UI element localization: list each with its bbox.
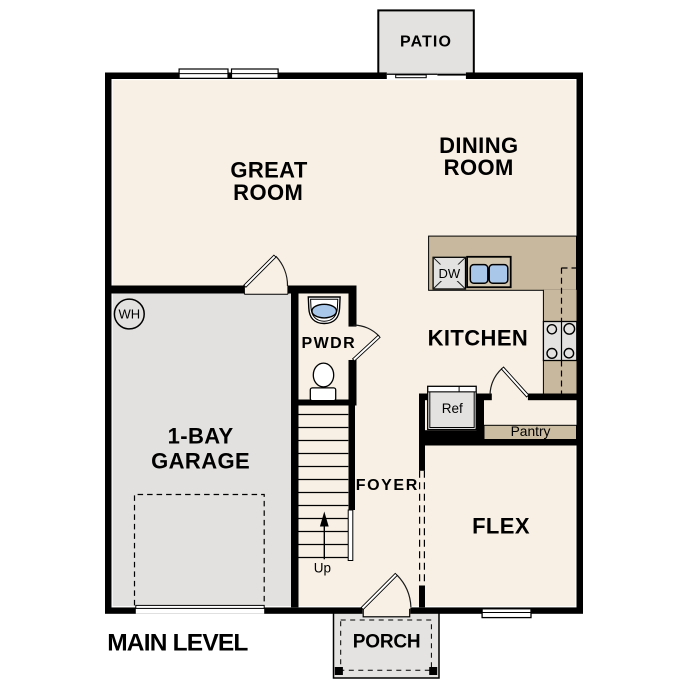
svg-text:FLEX: FLEX <box>472 514 530 539</box>
svg-text:KITCHEN: KITCHEN <box>428 326 529 351</box>
svg-text:ROOM: ROOM <box>444 155 514 180</box>
svg-text:DINING: DINING <box>439 133 518 158</box>
svg-text:DW: DW <box>438 266 460 281</box>
svg-text:FOYER: FOYER <box>356 477 419 494</box>
svg-text:PORCH: PORCH <box>353 631 421 652</box>
svg-text:Up: Up <box>314 560 331 575</box>
svg-text:Pantry: Pantry <box>511 424 551 439</box>
svg-text:Ref: Ref <box>442 401 463 416</box>
svg-text:GREAT: GREAT <box>230 157 308 182</box>
svg-text:MAIN LEVEL: MAIN LEVEL <box>107 629 248 656</box>
svg-text:PWDR: PWDR <box>302 335 356 352</box>
svg-text:WH: WH <box>118 307 140 322</box>
svg-text:GARAGE: GARAGE <box>151 449 250 474</box>
svg-text:ROOM: ROOM <box>233 180 303 205</box>
svg-text:PATIO: PATIO <box>400 34 452 51</box>
svg-text:1-BAY: 1-BAY <box>168 424 234 449</box>
